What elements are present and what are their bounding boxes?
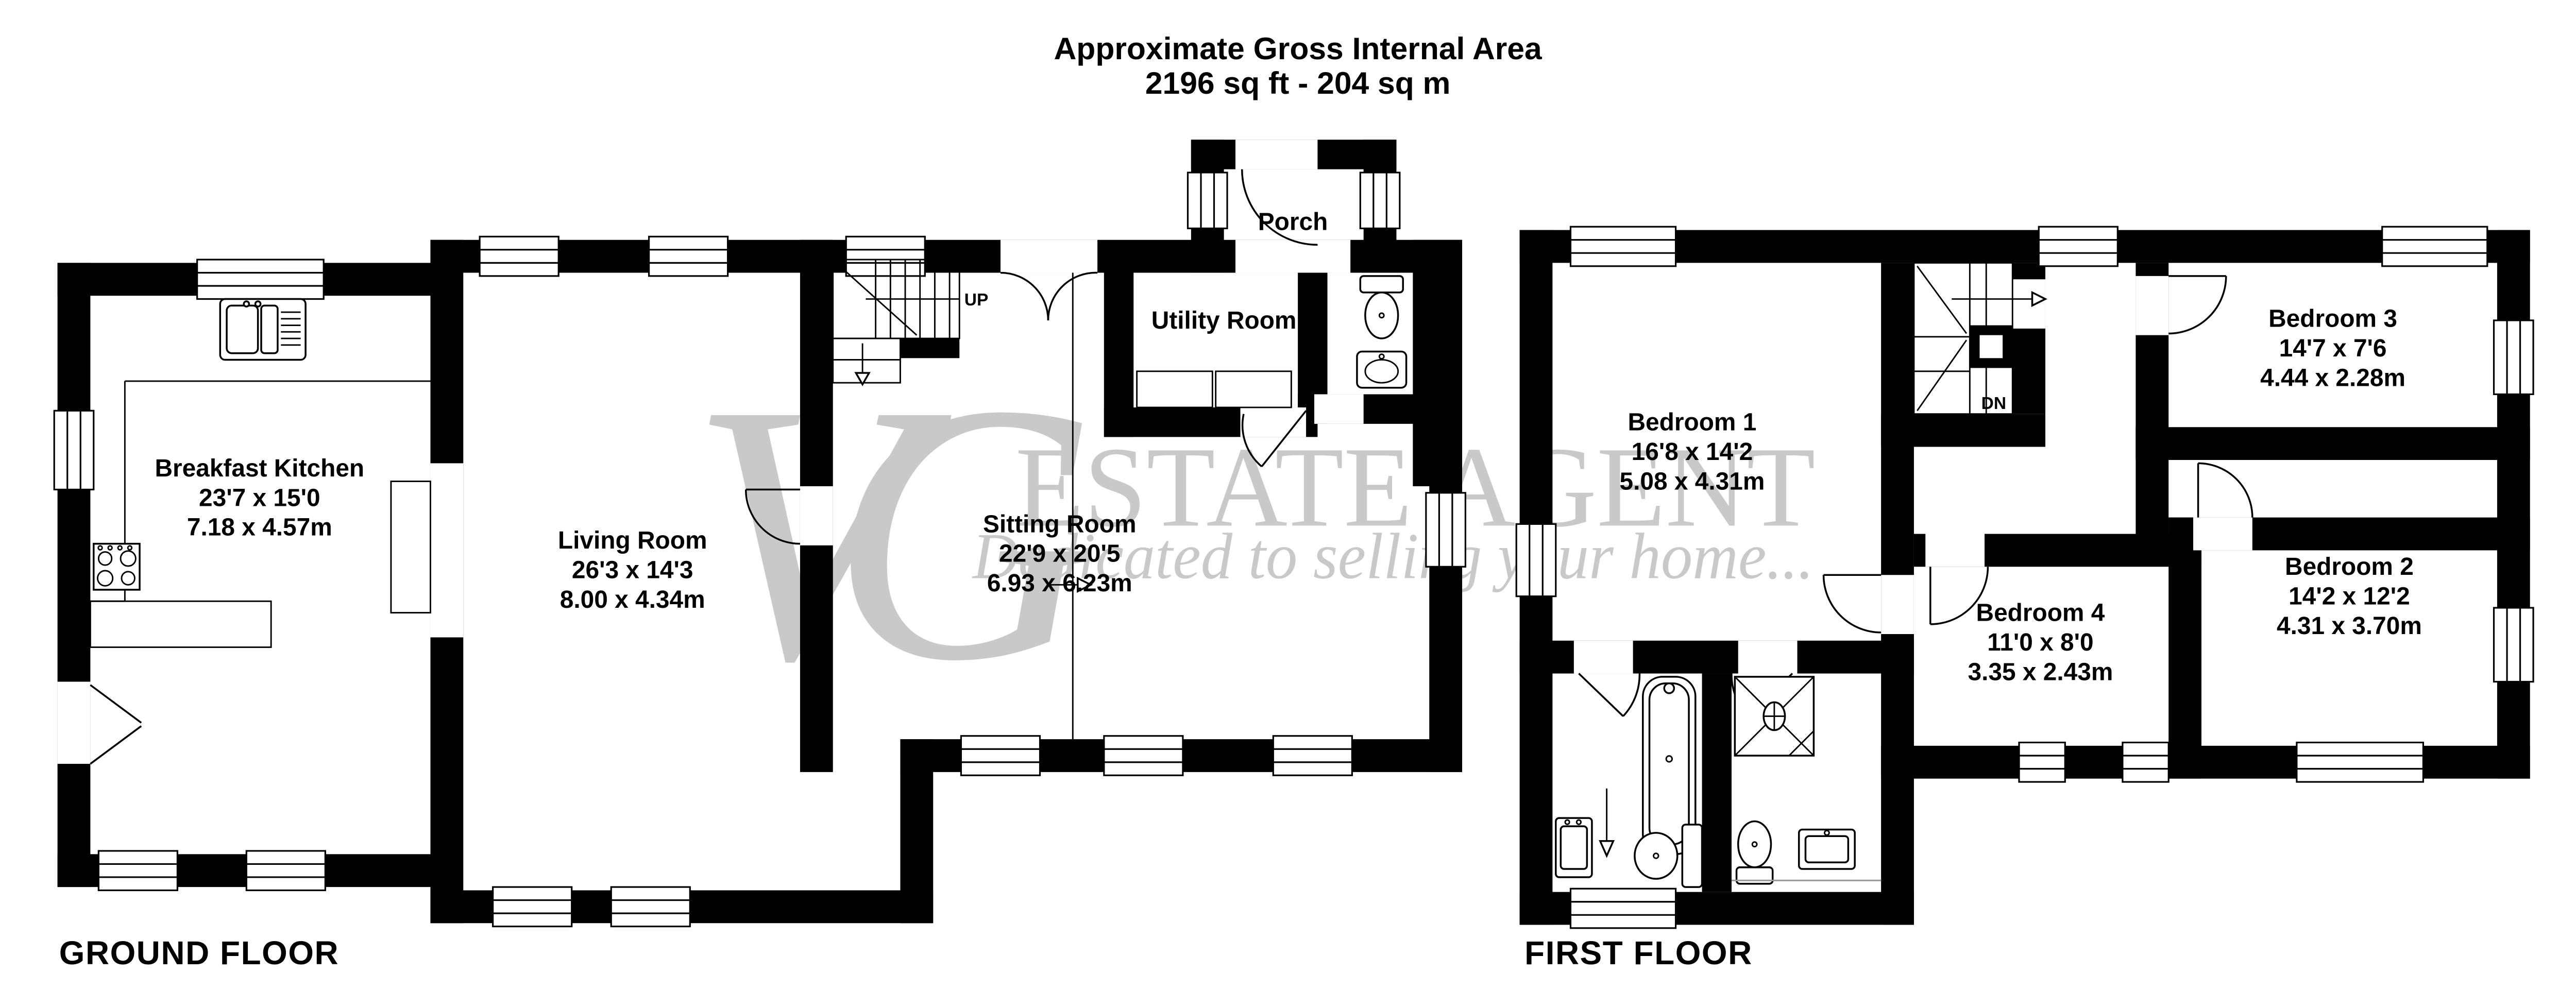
room-utility-label: Utility Room xyxy=(1151,307,1297,334)
room-name: Bedroom 4 xyxy=(1976,599,2105,626)
page-title: Approximate Gross Internal Area 2196 sq … xyxy=(1054,31,1543,100)
room-dims-ft: 14'7 x 7'6 xyxy=(2279,335,2387,362)
room-dims-ft: 11'0 x 8'0 xyxy=(1987,629,2093,656)
ground-floor-title: GROUND FLOOR xyxy=(59,934,339,971)
room-bedroom1-label: Bedroom 1 16'8 x 14'2 5.08 x 4.31m xyxy=(1619,409,1765,496)
bathroom-basin xyxy=(1556,818,1592,877)
room-dims-m: 7.18 x 4.57m xyxy=(187,514,332,541)
room-dims-ft: 14'2 x 12'2 xyxy=(2289,583,2410,610)
wc-basin xyxy=(1357,352,1406,388)
title-line-1: Approximate Gross Internal Area xyxy=(1054,31,1543,66)
shower-enclosure xyxy=(1735,677,1814,756)
room-dims-m: 8.00 x 4.34m xyxy=(560,586,705,613)
room-name: Bedroom 3 xyxy=(2268,305,2397,333)
room-dims-m: 6.93 x 6.23m xyxy=(987,570,1132,597)
room-dims-ft: 16'8 x 14'2 xyxy=(1632,438,1753,466)
room-dims-m: 4.31 x 3.70m xyxy=(2277,612,2422,640)
room-dims-ft: 23'7 x 15'0 xyxy=(199,484,320,511)
floorplan-canvas: VG ESTATE AGENT Dedicated to selling you… xyxy=(0,0,2576,1007)
room-dims-ft: 26'3 x 14'3 xyxy=(572,557,693,584)
shower-room-basin xyxy=(1799,829,1855,869)
stairs-dn-label: DN xyxy=(1981,394,2006,413)
room-dims-m: 4.44 x 2.28m xyxy=(2260,365,2405,392)
kitchen-hob xyxy=(94,544,140,590)
room-living-room-label: Living Room 26'3 x 14'3 8.00 x 4.34m xyxy=(558,527,707,613)
room-dims-ft: 22'9 x 20'5 xyxy=(999,540,1121,568)
room-dims-m: 3.35 x 2.43m xyxy=(1968,658,2113,686)
floorplan-page: VG ESTATE AGENT Dedicated to selling you… xyxy=(0,0,2576,1007)
title-line-2: 2196 sq ft - 204 sq m xyxy=(1145,65,1451,100)
kitchen-sink xyxy=(220,299,306,360)
room-bedroom4-label: Bedroom 4 11'0 x 8'0 3.35 x 2.43m xyxy=(1968,599,2113,686)
room-bedroom3-label: Bedroom 3 14'7 x 7'6 4.44 x 2.28m xyxy=(2260,305,2405,392)
room-bedroom2-label: Bedroom 2 14'2 x 12'2 4.31 x 3.70m xyxy=(2277,553,2422,640)
room-dims-m: 5.08 x 4.31m xyxy=(1619,468,1765,495)
room-sitting-room-label: Sitting Room 22'9 x 20'5 6.93 x 6.23m xyxy=(983,510,1137,597)
room-name: Living Room xyxy=(558,527,707,554)
shower-room-toilet xyxy=(1737,822,1773,884)
room-name: Breakfast Kitchen xyxy=(155,455,364,482)
stairs-up-label: UP xyxy=(964,291,988,310)
room-name: Bedroom 2 xyxy=(2285,553,2414,581)
room-name: Bedroom 1 xyxy=(1628,409,1757,436)
room-name: Sitting Room xyxy=(983,510,1137,538)
room-porch-label: Porch xyxy=(1258,209,1328,236)
first-floor-title: FIRST FLOOR xyxy=(1524,934,1753,971)
